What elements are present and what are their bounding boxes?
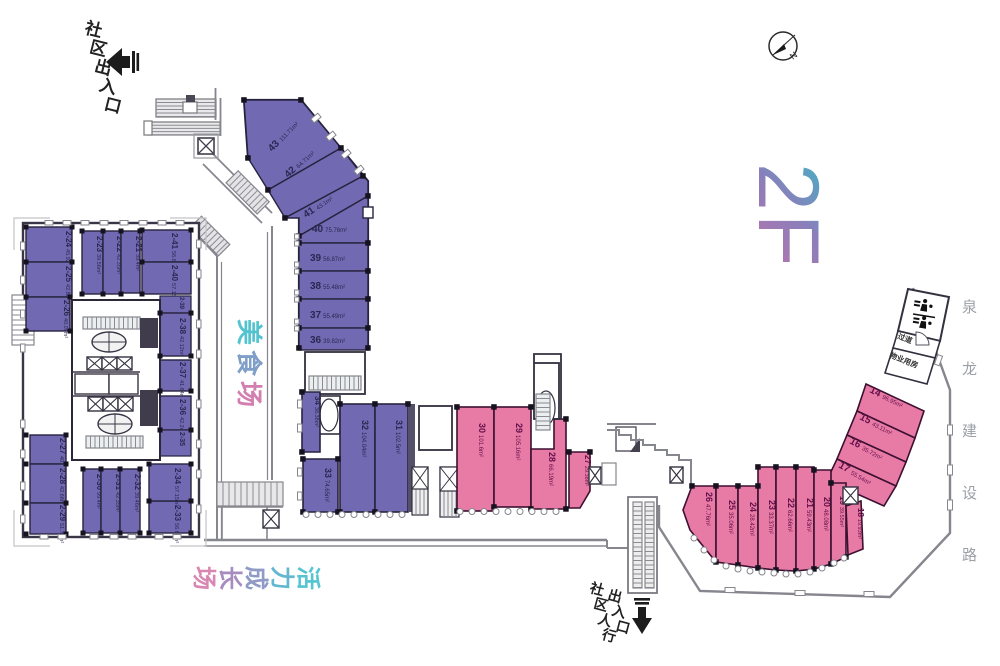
svg-text:场: 场 <box>234 381 264 407</box>
svg-text:长: 长 <box>216 566 243 591</box>
svg-text:路: 路 <box>962 547 977 564</box>
svg-text:食: 食 <box>234 350 264 377</box>
svg-text:2-35: 2-35 <box>178 432 185 446</box>
svg-text:2F: 2F <box>740 163 836 269</box>
svg-text:建: 建 <box>962 423 977 440</box>
svg-text:场: 场 <box>190 566 217 590</box>
svg-text:泉: 泉 <box>962 299 977 316</box>
svg-text:设: 设 <box>962 485 977 502</box>
svg-text:活: 活 <box>294 566 321 590</box>
svg-text:美: 美 <box>234 319 264 345</box>
svg-text:2-39: 2-39 <box>178 297 184 310</box>
svg-text:成: 成 <box>242 566 269 590</box>
svg-text:龙: 龙 <box>962 361 977 378</box>
svg-text:力: 力 <box>268 566 295 590</box>
